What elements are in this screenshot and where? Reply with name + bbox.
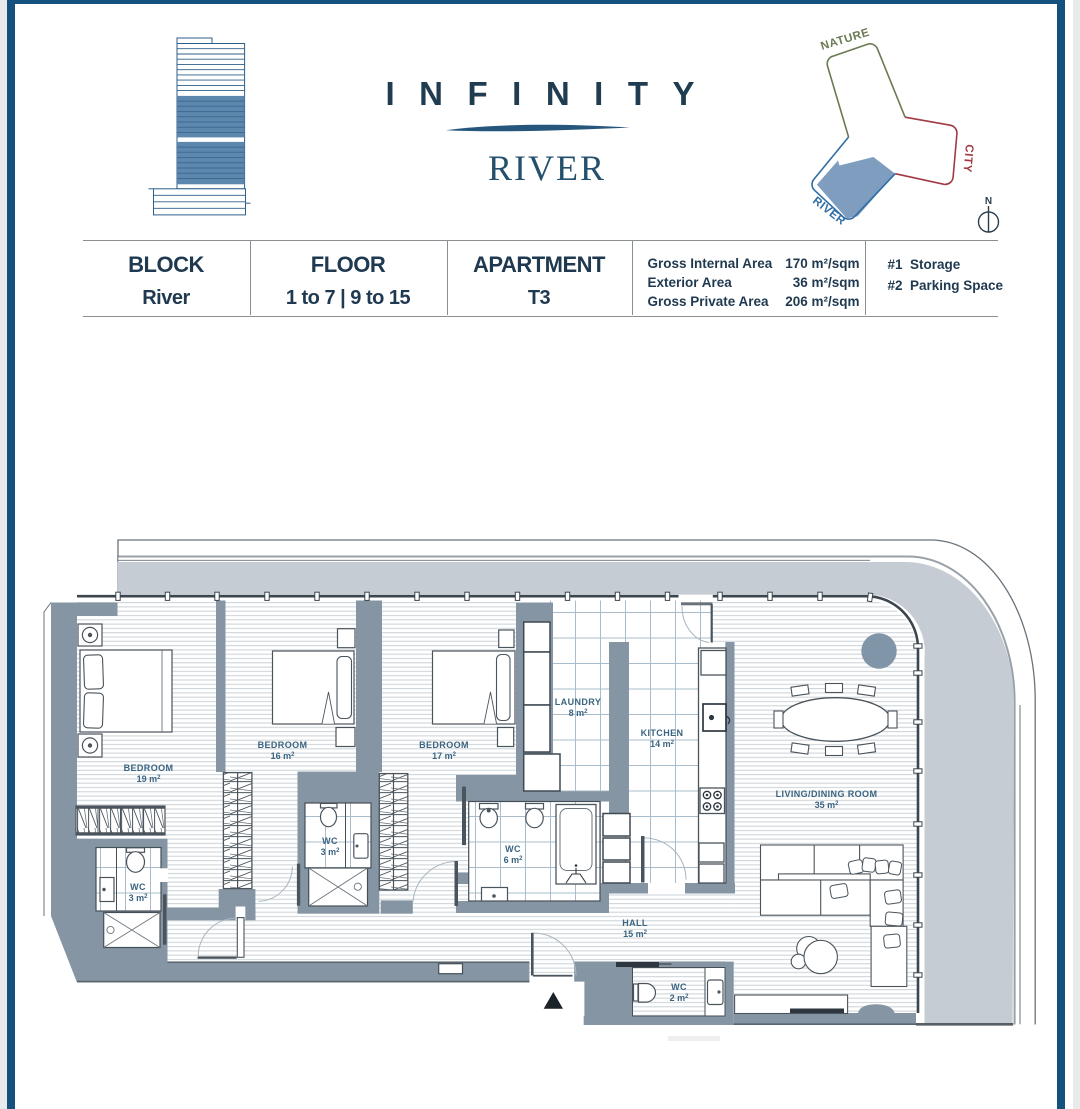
svg-text:BEDROOM: BEDROOM — [124, 763, 174, 773]
svg-text:BEDROOM: BEDROOM — [419, 740, 469, 750]
svg-text:KITCHEN: KITCHEN — [641, 728, 684, 738]
svg-text:CITY: CITY — [961, 144, 975, 174]
svg-text:LAUNDRY: LAUNDRY — [555, 697, 601, 707]
svg-text:WC: WC — [130, 882, 146, 892]
svg-text:WC: WC — [505, 844, 521, 854]
svg-text:LIVING/DINING ROOM: LIVING/DINING ROOM — [776, 789, 878, 799]
svg-text:NATURE: NATURE — [819, 27, 871, 53]
svg-text:BEDROOM: BEDROOM — [258, 740, 308, 750]
svg-text:WC: WC — [671, 982, 687, 992]
svg-text:WC: WC — [322, 836, 338, 846]
svg-text:N: N — [985, 196, 992, 207]
svg-text:HALL: HALL — [622, 918, 648, 928]
